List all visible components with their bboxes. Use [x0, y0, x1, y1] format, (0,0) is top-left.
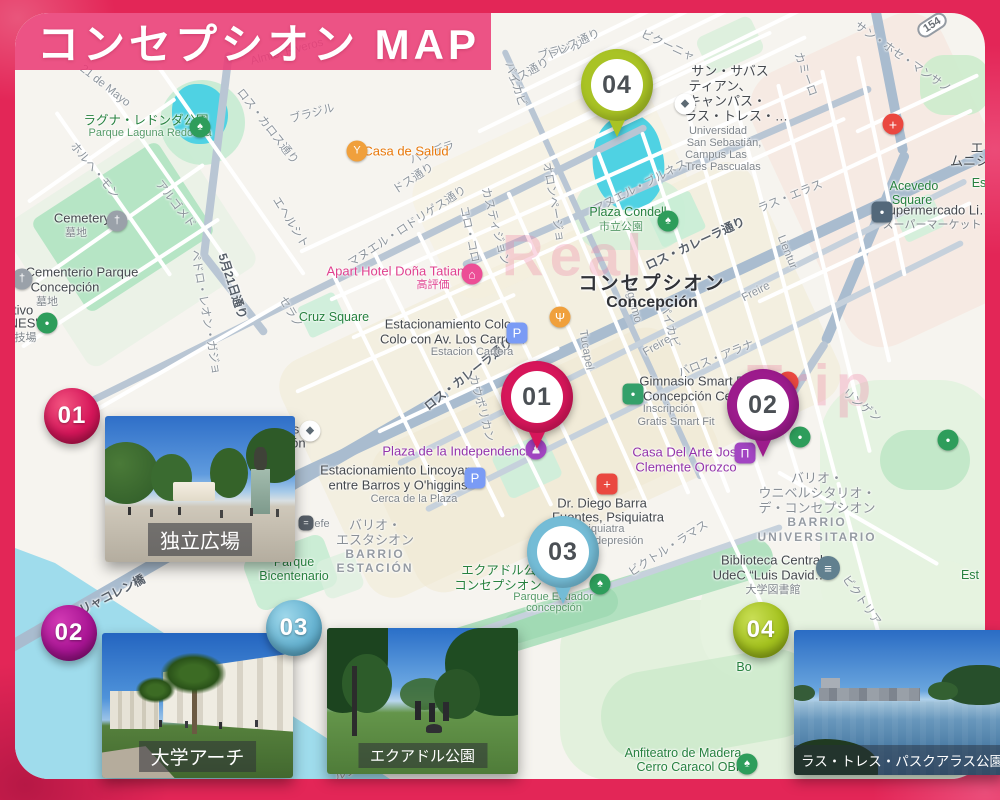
photo-caption: 独立広場 — [148, 523, 252, 556]
pin-number: 02 — [737, 379, 789, 431]
photo-caption: ラス・トレス・パスクアラス公園 — [794, 745, 1000, 775]
map-pin-01[interactable]: 01 — [501, 361, 573, 471]
pin-circle: 01 — [501, 361, 573, 433]
badge-number: 01 — [58, 402, 87, 430]
badge-number: 03 — [280, 614, 309, 642]
photo-parque-ecuador[interactable]: エクアドル公園 — [327, 628, 518, 774]
photo-caption: エクアドル公園 — [358, 743, 487, 768]
pin-circle: 02 — [727, 369, 799, 441]
pin-number: 01 — [511, 371, 563, 423]
pin-number: 03 — [537, 526, 589, 578]
photo-badge-04: 04 — [733, 602, 789, 658]
map-pin-03[interactable]: 03 — [527, 516, 599, 626]
pin-circle: 04 — [581, 49, 653, 121]
map-pin-02[interactable]: 02 — [727, 369, 799, 479]
frame: コンセプシオン MAP 154 RealTrip21 de Mayoロス・カロス… — [0, 0, 1000, 800]
pin-circle: 03 — [527, 516, 599, 588]
overlay-stage: 01 02 03 04 独立広場 — [0, 0, 1000, 800]
photo-caption: 大学アーチ — [139, 741, 257, 772]
photo-tres-pascualas[interactable]: ラス・トレス・パスクアラス公園 — [794, 630, 1000, 775]
photo-badge-01: 01 — [44, 388, 100, 444]
photo-badge-03: 03 — [266, 600, 322, 656]
photo-badge-02: 02 — [41, 605, 97, 661]
map-pin-04[interactable]: 04 — [581, 49, 653, 159]
photo-plaza-independencia[interactable]: 独立広場 — [105, 416, 295, 562]
badge-number: 02 — [55, 619, 84, 647]
photo-university-arch[interactable]: 大学アーチ — [102, 633, 293, 778]
badge-number: 04 — [747, 616, 776, 644]
pin-number: 04 — [591, 59, 643, 111]
